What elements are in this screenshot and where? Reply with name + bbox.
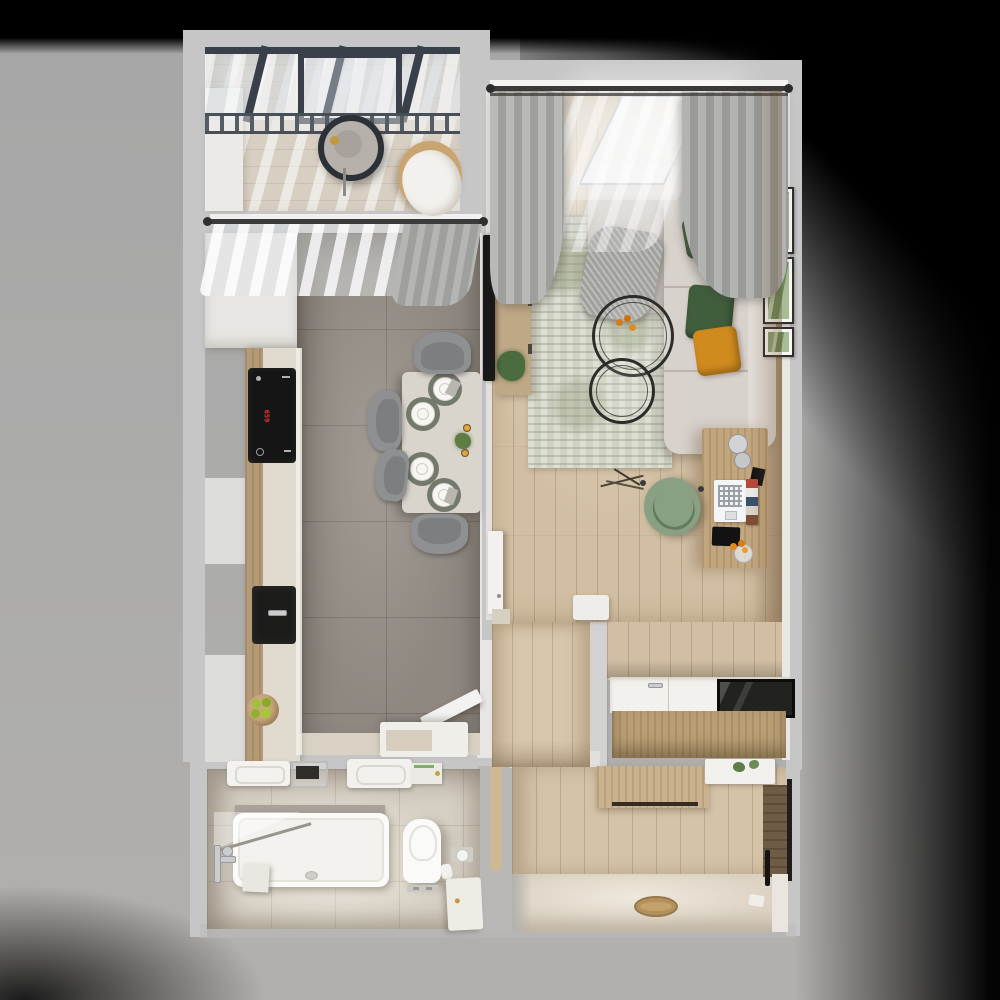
wardrobe-front — [612, 711, 786, 758]
candle — [461, 449, 469, 457]
cabinet-knob-gold — [455, 898, 460, 903]
hall-left-wood-sliver — [490, 766, 502, 870]
cooktop-control-dot — [282, 376, 290, 378]
small-white-object — [748, 894, 765, 907]
cooktop-display: 659 — [262, 410, 270, 423]
desk-flowers-orange — [730, 540, 750, 554]
entry-door-frame — [787, 779, 792, 881]
egg-chair-lamp-dot — [330, 136, 339, 145]
towel — [296, 766, 319, 779]
laptop-keyboard — [718, 485, 742, 507]
place-setting — [406, 397, 440, 431]
cooktop-control-dot — [256, 448, 264, 456]
wall-partition-vertical — [590, 607, 607, 767]
flush-plate — [407, 885, 439, 892]
toilet — [403, 819, 441, 883]
wall-balcony-top — [183, 30, 465, 47]
towel-rack — [291, 761, 328, 788]
table-plant — [455, 433, 471, 449]
table-flowers — [616, 315, 638, 333]
bath-side-cabinet — [446, 877, 484, 931]
console-handle — [528, 344, 532, 354]
wall-balcony-left — [183, 30, 205, 217]
wall-right — [788, 60, 802, 770]
dining-chair — [411, 514, 468, 554]
chair-base-dot — [640, 480, 646, 486]
apple — [252, 699, 261, 708]
flush-button — [413, 887, 419, 890]
paper-roll — [456, 849, 469, 862]
living-curtain-rod — [490, 86, 788, 91]
spare-roll — [440, 863, 453, 880]
wall-frame — [763, 327, 794, 357]
toilet-paper-holder — [451, 847, 473, 862]
living-drape-right — [682, 92, 788, 298]
kitchen-pilaster — [205, 478, 245, 564]
shelf-plant — [733, 762, 745, 772]
kitchen-pilaster — [205, 655, 245, 762]
console-plant — [497, 351, 525, 381]
shower-shelf-cube — [242, 863, 269, 892]
laptop-trackpad — [725, 511, 737, 520]
door-threshold — [492, 609, 510, 624]
flush-button — [426, 887, 432, 890]
pillow-orange — [692, 325, 742, 377]
bathtub-drain — [305, 871, 318, 880]
curtain-rod-knob — [784, 84, 793, 93]
shelf-plant — [749, 760, 759, 769]
coffee-table-small — [589, 358, 655, 424]
entry-door-handle — [765, 850, 770, 886]
mirror-cabinet — [412, 763, 442, 784]
wardrobe-divider — [668, 677, 669, 713]
niche-shadow — [607, 660, 782, 678]
white-bench — [573, 595, 609, 620]
round-door-mat — [634, 896, 678, 917]
basin-bowl-line — [235, 766, 285, 784]
desk-books — [746, 479, 758, 525]
floating-shelf — [705, 759, 775, 784]
curtain-rod-cap — [203, 217, 212, 226]
curtain-rod-knob — [486, 84, 495, 93]
counter-edge-light — [296, 348, 302, 755]
sink-faucet — [268, 610, 287, 616]
shoe-cabinet — [597, 766, 709, 808]
washbasin — [227, 761, 290, 786]
desk-lamp-disc — [728, 434, 748, 454]
chair-base-dot — [698, 486, 704, 492]
shower-mixer — [220, 856, 236, 863]
apple — [261, 708, 271, 718]
dining-chair — [414, 332, 471, 374]
induction-cooktop: 659 — [248, 368, 296, 463]
shower-handle — [222, 846, 233, 857]
living-open-door — [488, 531, 503, 614]
wall-left — [183, 215, 205, 762]
basin-bowl-line — [356, 765, 406, 785]
apple — [262, 698, 271, 707]
cooktop-control-dot — [284, 450, 291, 452]
wardrobe-handle — [648, 683, 663, 688]
wall-bathroom-left — [190, 751, 207, 937]
corridor-floor — [492, 622, 590, 767]
hall-tile-left-shade — [512, 874, 532, 932]
shelf-recess — [386, 730, 432, 751]
door-handle-dot — [497, 594, 501, 598]
cooktop-control-dot — [256, 376, 261, 381]
open-shelf-unit — [380, 722, 468, 757]
cabinet-gold-knob — [435, 771, 440, 776]
second-washbasin — [347, 759, 412, 788]
apple — [251, 709, 260, 718]
shoe-cabinet-slot — [612, 802, 698, 806]
candle — [463, 424, 471, 432]
floorplan-render: 659 — [0, 0, 1000, 1000]
egg-chair-cushion — [334, 130, 362, 158]
desk-lamp-disc — [734, 452, 751, 469]
laptop — [714, 480, 746, 522]
dining-chair — [367, 391, 402, 451]
fruit-bowl — [247, 694, 279, 726]
shower-bar — [214, 845, 221, 883]
living-drape-left — [490, 92, 564, 304]
living-curtain-rod-lower — [490, 93, 788, 96]
cabinet-green-sliver — [414, 765, 434, 768]
hall-right-face — [772, 874, 788, 932]
toilet-seat-line — [409, 825, 437, 861]
egg-chair-stand — [343, 168, 346, 196]
